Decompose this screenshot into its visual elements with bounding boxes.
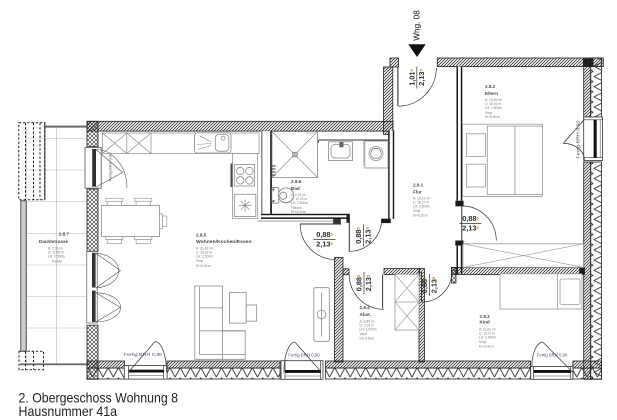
svg-text:2.8.2: 2.8.2 [485,84,496,89]
svg-text:LH: 2,500m: LH: 2,500m [196,254,213,258]
svg-text:Hausnummer 41a: Hausnummer 41a [19,403,118,419]
svg-text:Fertig BRH 0,90: Fertig BRH 0,90 [124,352,163,357]
svg-text:LH: 2,500m: LH: 2,500m [291,201,308,205]
svg-text:Abst.: Abst. [360,312,371,317]
svg-text:Bad: Bad [291,186,300,191]
svg-text:Platten: Platten [52,259,62,263]
svg-text:2.8.6: 2.8.6 [291,179,302,184]
svg-text:LH: 2,500m: LH: 2,500m [485,106,502,110]
svg-text:Flur: Flur [413,189,422,194]
svg-text:EH 6,5cm: EH 6,5cm [479,344,494,348]
svg-text:EH 6,5cm: EH 6,5cm [196,264,211,268]
svg-text:2.8.7: 2.8.7 [59,232,70,237]
svg-text:Wohnen/Kochen/Essen: Wohnen/Kochen/Essen [196,239,252,244]
svg-text:LH: 2,500m: LH: 2,500m [479,335,496,339]
svg-text:2.8.5: 2.8.5 [196,232,207,237]
svg-text:EH 6,5cm: EH 6,5cm [485,115,500,119]
svg-text:EH 6,5cm: EH 6,5cm [413,213,428,217]
svg-text:Vinyl: Vinyl [196,259,203,263]
svg-text:2.8.4: 2.8.4 [360,305,371,310]
svg-text:Dusche: Dusche [306,131,315,135]
svg-text:Whg. 08: Whg. 08 [413,10,422,41]
svg-text:Fertig-BRH 0,90: Fertig-BRH 0,90 [108,153,112,182]
svg-text:LH: 2,500m: LH: 2,500m [360,327,377,331]
svg-text:LH: 2,500m: LH: 2,500m [413,204,430,208]
svg-text:EH 6,0cm: EH 6,0cm [291,210,306,214]
svg-text:2.8.3: 2.8.3 [480,314,491,319]
svg-text:Fertig BRH 0,90: Fertig BRH 0,90 [288,353,320,358]
svg-text:LH: 2,500m: LH: 2,500m [48,255,65,259]
svg-text:Eltern: Eltern [485,91,498,96]
svg-text:2.8.1: 2.8.1 [413,182,424,187]
svg-text:Fertig BRH 0,90: Fertig BRH 0,90 [537,352,568,357]
svg-text:Fertig-BRH 0,90: Fertig-BRH 0,90 [576,120,581,159]
svg-text:EH 6,5cm: EH 6,5cm [360,336,375,340]
svg-text:Dachterrasse: Dachterrasse [39,239,69,244]
svg-text:Kind: Kind [480,320,490,325]
